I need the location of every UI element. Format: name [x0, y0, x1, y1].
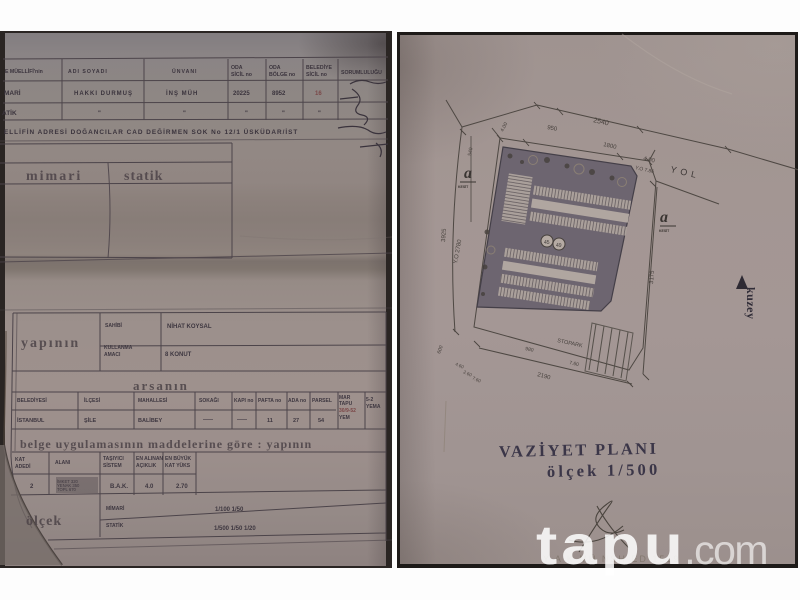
svg-text:3925: 3925 — [441, 228, 448, 242]
svg-text:540: 540 — [467, 147, 474, 156]
svg-text:8 KONUT: 8 KONUT — [165, 352, 192, 358]
svg-text:KAPI no: KAPI no — [234, 398, 253, 404]
svg-text:49: 49 — [556, 243, 562, 249]
svg-text:2.70: 2.70 — [176, 484, 188, 490]
svg-text:1/100 1/50: 1/100 1/50 — [215, 507, 244, 513]
svg-text:a: a — [464, 165, 472, 182]
svg-text:2.60: 2.60 — [463, 369, 474, 377]
svg-text:kuzey: kuzey — [744, 287, 758, 320]
svg-text:2540: 2540 — [593, 117, 610, 127]
svg-text:ölçek 1/500: ölçek 1/500 — [547, 460, 661, 481]
svg-text:ADI SOYADI: ADI SOYADI — [68, 69, 108, 75]
svg-text:BELEDİYE: BELEDİYE — [306, 64, 332, 71]
svg-text:ÜNVANI: ÜNVANI — [172, 68, 198, 75]
svg-text:——: —— — [237, 417, 247, 423]
svg-text:YEM: YEM — [339, 415, 350, 421]
svg-text:MARİ: MARİ — [4, 89, 21, 97]
svg-text:a: a — [660, 209, 668, 226]
svg-text:YOL: YOL — [670, 164, 701, 180]
svg-text:4.00: 4.00 — [499, 121, 509, 133]
svg-text:E MÜELLİFİ'nin: E MÜELLİFİ'nin — [5, 68, 43, 75]
svg-text:belge uygulamasının maddelerin: belge uygulamasının maddelerine göre : y… — [20, 437, 312, 451]
svg-text:27: 27 — [293, 418, 299, 424]
svg-text:BÖLGE no: BÖLGE no — [269, 71, 295, 78]
svg-text:mimari: mimari — [26, 169, 82, 184]
svg-text:": " — [282, 111, 285, 117]
svg-text:SİCİL no: SİCİL no — [231, 71, 252, 78]
svg-text:TAPU: TAPU — [339, 401, 353, 407]
svg-text:SORUMLULUĞU: SORUMLULUĞU — [341, 68, 382, 76]
svg-text:AMACI: AMACI — [104, 352, 121, 358]
svg-text:HAKKI DURMUŞ: HAKKI DURMUŞ — [74, 91, 133, 97]
svg-text:EN ALINAN: EN ALINAN — [136, 456, 163, 462]
svg-text:600: 600 — [436, 345, 445, 355]
svg-text:16: 16 — [315, 91, 322, 97]
svg-text:SOKAĞI: SOKAĞI — [199, 396, 219, 404]
svg-text:EN BÜYÜK: EN BÜYÜK — [165, 455, 192, 462]
svg-text:KAT YÜKS: KAT YÜKS — [165, 462, 191, 469]
svg-text:4.0: 4.0 — [145, 484, 154, 490]
svg-text:": " — [183, 111, 186, 117]
svg-text:ADA no: ADA no — [288, 398, 306, 404]
svg-text:ODA: ODA — [231, 65, 243, 71]
svg-text:980: 980 — [525, 346, 535, 354]
svg-text:1800: 1800 — [603, 142, 618, 151]
svg-text:KESİT: KESİT — [458, 185, 469, 189]
svg-text:YEMA: YEMA — [366, 404, 381, 410]
svg-text:AÇIKLIK: AÇIKLIK — [136, 463, 157, 469]
svg-text:STATİK: STATİK — [106, 522, 124, 529]
svg-text:30/9-52: 30/9-52 — [339, 408, 356, 414]
svg-text:5-2: 5-2 — [366, 397, 373, 403]
svg-text:——: —— — [203, 417, 213, 423]
svg-text:8952: 8952 — [272, 91, 286, 97]
svg-text:MAHALLESİ: MAHALLESİ — [138, 397, 168, 404]
svg-text:ATİK: ATİK — [2, 109, 17, 117]
svg-text:7.60: 7.60 — [472, 375, 483, 383]
svg-text:VAZİYET PLANI: VAZİYET PLANI — [499, 439, 659, 461]
svg-text:TAŞIYICI: TAŞIYICI — [103, 456, 124, 462]
svg-text:TOPL 670: TOPL 670 — [57, 487, 77, 492]
svg-text:4.60: 4.60 — [455, 361, 466, 369]
svg-text:İSTANBUL: İSTANBUL — [17, 417, 45, 424]
svg-text:KULLANMA: KULLANMA — [104, 345, 133, 351]
svg-text:ALANI: ALANI — [55, 460, 71, 466]
svg-text:3175: 3175 — [649, 270, 656, 284]
svg-text:": " — [98, 111, 101, 117]
svg-text:20225: 20225 — [233, 91, 250, 97]
svg-text:İNŞ MÜH: İNŞ MÜH — [166, 90, 198, 97]
svg-text:ŞİLE: ŞİLE — [84, 417, 97, 424]
svg-text:ODA: ODA — [269, 65, 281, 71]
svg-text:950: 950 — [547, 125, 559, 133]
svg-text:NİHAT KOYSAL: NİHAT KOYSAL — [167, 323, 212, 330]
svg-text:ADEDİ: ADEDİ — [15, 463, 31, 470]
svg-text:yapının: yapının — [21, 336, 80, 351]
svg-text:KESİT: KESİT — [659, 229, 670, 233]
svg-text:": " — [318, 111, 321, 117]
svg-text:Y.O 7.86: Y.O 7.86 — [635, 165, 655, 175]
svg-text:PAFTA no: PAFTA no — [258, 398, 281, 404]
svg-text:4.00: 4.00 — [643, 156, 656, 165]
svg-text:SAHİBİ: SAHİBİ — [105, 322, 123, 329]
svg-text:BELEDİYESİ: BELEDİYESİ — [17, 397, 47, 404]
svg-text:54: 54 — [318, 418, 325, 424]
svg-text:2190: 2190 — [536, 372, 551, 381]
svg-text:statik: statik — [124, 169, 163, 184]
svg-text:KAT: KAT — [15, 457, 25, 463]
svg-text:11: 11 — [267, 418, 273, 424]
svg-text:1/500 1/50 1/20: 1/500 1/50 1/20 — [214, 526, 256, 532]
svg-text:45: 45 — [544, 240, 550, 246]
svg-text:PARSEL: PARSEL — [312, 398, 332, 404]
svg-text:Y.O 2780: Y.O 2780 — [453, 238, 463, 264]
svg-text:B.A.K.: B.A.K. — [110, 484, 128, 490]
svg-text:7.60: 7.60 — [569, 360, 580, 368]
svg-text:SİSTEM: SİSTEM — [103, 462, 122, 469]
svg-text:STOPARK: STOPARK — [557, 338, 584, 349]
svg-text:arsanın: arsanın — [133, 378, 189, 393]
svg-text:": " — [245, 111, 248, 117]
svg-text:ölçek: ölçek — [26, 514, 62, 529]
svg-text:2: 2 — [30, 484, 34, 490]
svg-text:BALİBEY: BALİBEY — [138, 417, 162, 424]
svg-text:ELLİFİN ADRESİ DOĞANCILAR: ELLİFİN ADRESİ DOĞANCILAR CAD DEĞİRMEN S… — [4, 127, 298, 136]
svg-text:SİCİL no: SİCİL no — [306, 71, 327, 78]
svg-text:MİMARİ: MİMARİ — [106, 505, 125, 512]
svg-text:İLÇESİ: İLÇESİ — [84, 397, 101, 404]
